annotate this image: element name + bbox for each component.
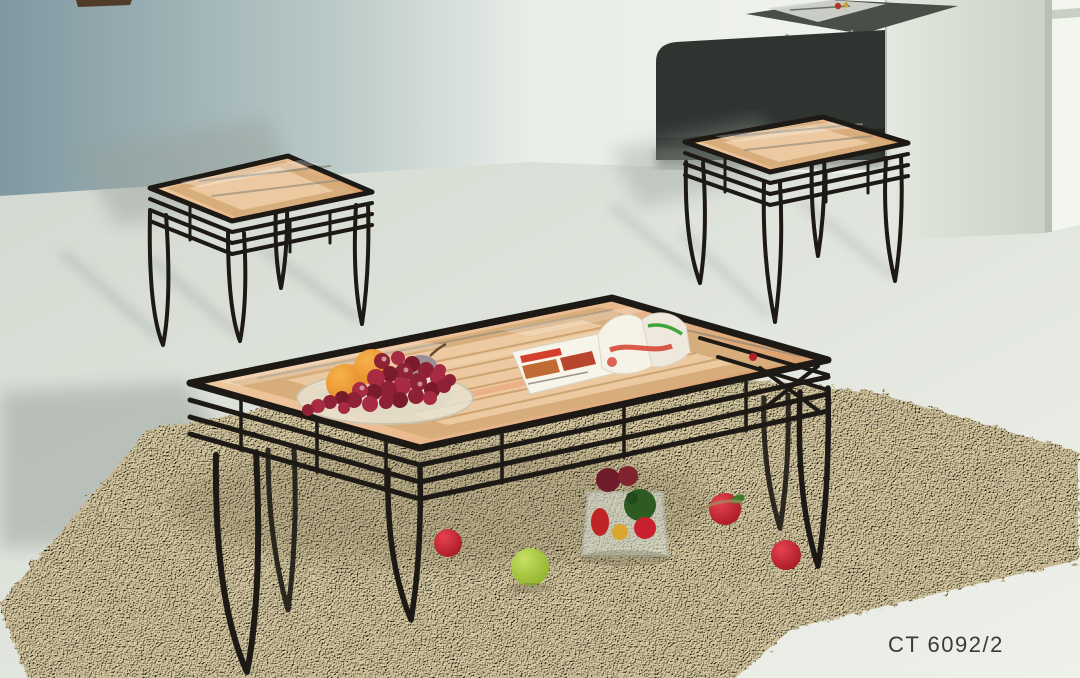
vase-grapes — [596, 468, 620, 492]
magazine-photo — [607, 357, 617, 367]
vase-apple — [634, 517, 656, 539]
wall-column — [886, 0, 1048, 240]
desk-magazine-photo — [843, 2, 848, 7]
vase-grapes — [618, 466, 638, 486]
apple-shadow — [508, 583, 552, 593]
magazine-red-swirl — [610, 346, 672, 350]
red-apple — [434, 529, 462, 557]
product-code: CT 6092/2 — [888, 632, 1004, 657]
product-photo: CT 6092/2 — [0, 0, 1080, 678]
red-apple — [771, 540, 801, 570]
vase-shadow — [580, 550, 670, 566]
desk-magazine-photo — [835, 3, 841, 9]
green-apple — [511, 548, 549, 586]
cherry-on-table — [749, 353, 757, 361]
vase-broccoli — [626, 492, 638, 504]
scene-canvas: CT 6092/2 — [0, 0, 1080, 678]
window-strip — [1048, 0, 1080, 232]
vase-lemon — [612, 524, 628, 540]
vase-pepper — [591, 508, 609, 536]
window-frame — [1045, 0, 1052, 232]
